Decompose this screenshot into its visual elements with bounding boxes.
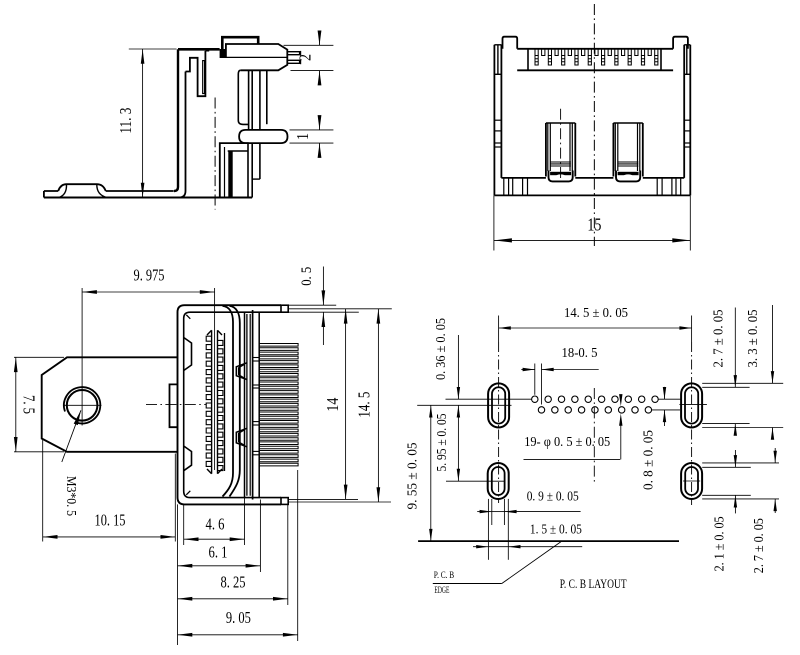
svg-text:15: 15 — [587, 215, 601, 235]
svg-text:10. 15: 10. 15 — [95, 510, 126, 529]
svg-text:11. 3: 11. 3 — [116, 108, 135, 134]
svg-text:0. 5: 0. 5 — [299, 267, 315, 286]
svg-text:3. 3 ± 0. 05: 3. 3 ± 0. 05 — [746, 310, 761, 368]
svg-text:EDGE: EDGE — [434, 586, 449, 596]
svg-text:14. 5 ± 0. 05: 14. 5 ± 0. 05 — [564, 306, 628, 321]
svg-text:4. 6: 4. 6 — [206, 515, 225, 534]
svg-text:2. 1 ± 0. 05: 2. 1 ± 0. 05 — [713, 516, 728, 571]
svg-text:P. C. B: P. C. B — [434, 571, 454, 581]
svg-text:2. 7 ± 0. 05: 2. 7 ± 0. 05 — [712, 310, 727, 368]
svg-text:14. 5: 14. 5 — [355, 392, 374, 418]
svg-text:9. 55 ± 0. 05: 9. 55 ± 0. 05 — [405, 443, 420, 510]
svg-text:0. 8 ± 0. 05: 0. 8 ± 0. 05 — [642, 430, 657, 490]
svg-text:5. 95 ± 0. 05: 5. 95 ± 0. 05 — [435, 414, 450, 472]
svg-text:0. 9 ± 0. 05: 0. 9 ± 0. 05 — [527, 490, 579, 505]
svg-text:1. 5 ± 0. 05: 1. 5 ± 0. 05 — [530, 522, 582, 537]
svg-text:P. C. B LAYOUT: P. C. B LAYOUT — [560, 577, 627, 591]
svg-text:2: 2 — [295, 54, 314, 61]
svg-text:19- φ 0. 5 ± 0. 05: 19- φ 0. 5 ± 0. 05 — [524, 435, 610, 450]
svg-text:M3*0. 5: M3*0. 5 — [63, 476, 78, 516]
svg-text:2. 7 ± 0. 05: 2. 7 ± 0. 05 — [752, 518, 767, 573]
svg-text:8. 25: 8. 25 — [221, 572, 246, 591]
svg-text:9. 975: 9. 975 — [134, 265, 165, 284]
svg-text:18-0. 5: 18-0. 5 — [562, 346, 598, 361]
svg-text:7. 5: 7. 5 — [20, 395, 39, 414]
svg-text:14: 14 — [323, 397, 342, 411]
svg-text:9. 05: 9. 05 — [226, 608, 251, 627]
svg-text:1: 1 — [293, 133, 312, 140]
svg-text:0. 36 ± 0. 05: 0. 36 ± 0. 05 — [434, 318, 449, 380]
svg-text:6. 1: 6. 1 — [209, 542, 228, 561]
